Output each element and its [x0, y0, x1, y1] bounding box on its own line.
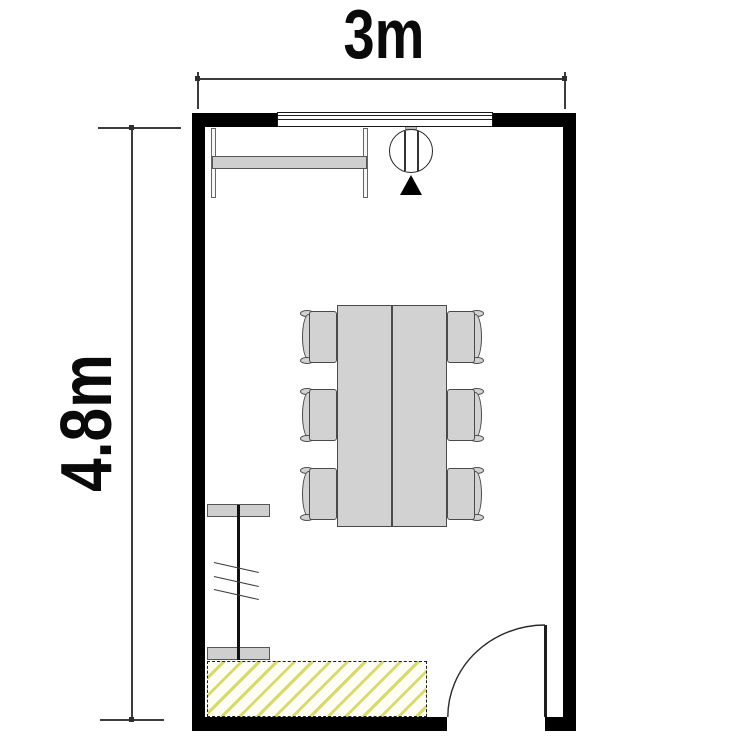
fixture-chord-line: [404, 131, 406, 171]
height-dimension-label: 4.8m: [57, 331, 117, 516]
chair-seat: [447, 468, 475, 520]
wall-desk: [212, 156, 367, 169]
wall-bottom-door-stub: [545, 717, 576, 731]
height-extension-line-top: [98, 127, 181, 129]
wall-top-left-segment: [192, 113, 278, 127]
hatched-counter: [207, 661, 427, 717]
chair: [446, 388, 484, 442]
chair-seat: [309, 389, 337, 441]
wall-bottom: [192, 717, 447, 731]
chair: [300, 310, 338, 364]
floor-plan: 3m 4.8m: [0, 0, 750, 750]
width-dimension-line: [198, 78, 565, 80]
height-dim-tick-top: [129, 125, 134, 130]
direction-arrow-icon: [400, 175, 422, 195]
chair: [300, 388, 338, 442]
table-divider-line: [391, 306, 393, 526]
wall-left: [192, 113, 205, 731]
window-pane-line: [278, 115, 492, 120]
fixture-chord-line: [417, 131, 419, 171]
chair-seat: [447, 389, 475, 441]
window: [277, 112, 493, 127]
chair: [446, 310, 484, 364]
height-dim-tick-bottom: [129, 717, 134, 722]
width-dim-tick-left: [195, 76, 200, 81]
ceiling-fixture-icon: [389, 129, 433, 173]
chair-seat: [447, 311, 475, 363]
width-dim-tick-right: [562, 76, 567, 81]
wall-right: [563, 113, 576, 731]
chair-seat: [309, 468, 337, 520]
chair-seat: [309, 311, 337, 363]
door-swing-arc: [447, 624, 547, 718]
chair: [446, 467, 484, 521]
width-dimension-label: 3m: [304, 0, 464, 68]
height-dimension-line: [131, 128, 133, 720]
chair: [300, 467, 338, 521]
